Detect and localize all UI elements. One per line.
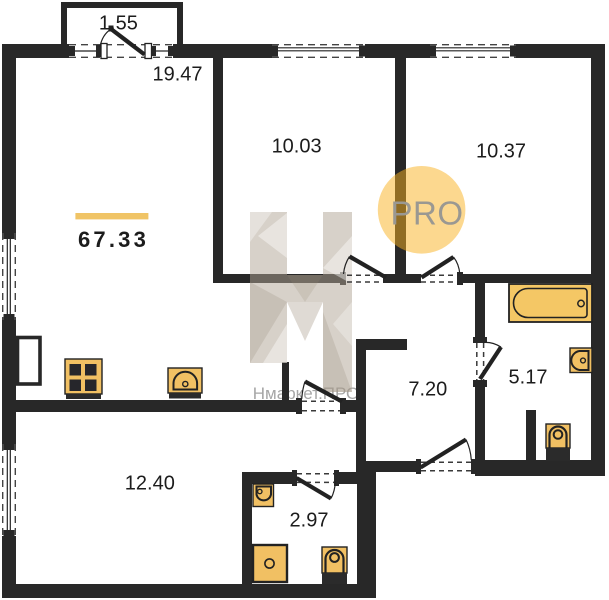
svg-text:5.17: 5.17 bbox=[509, 367, 548, 389]
svg-text:67.33: 67.33 bbox=[78, 227, 149, 252]
svg-text:10.03: 10.03 bbox=[272, 136, 322, 158]
svg-text:1.55: 1.55 bbox=[99, 13, 138, 35]
svg-text:2.97: 2.97 bbox=[290, 510, 329, 532]
svg-text:12.40: 12.40 bbox=[125, 473, 175, 495]
svg-text:7.20: 7.20 bbox=[408, 379, 447, 401]
svg-text:19.47: 19.47 bbox=[152, 64, 202, 86]
svg-text:PRO: PRO bbox=[390, 195, 463, 232]
svg-text:10.37: 10.37 bbox=[476, 141, 526, 163]
